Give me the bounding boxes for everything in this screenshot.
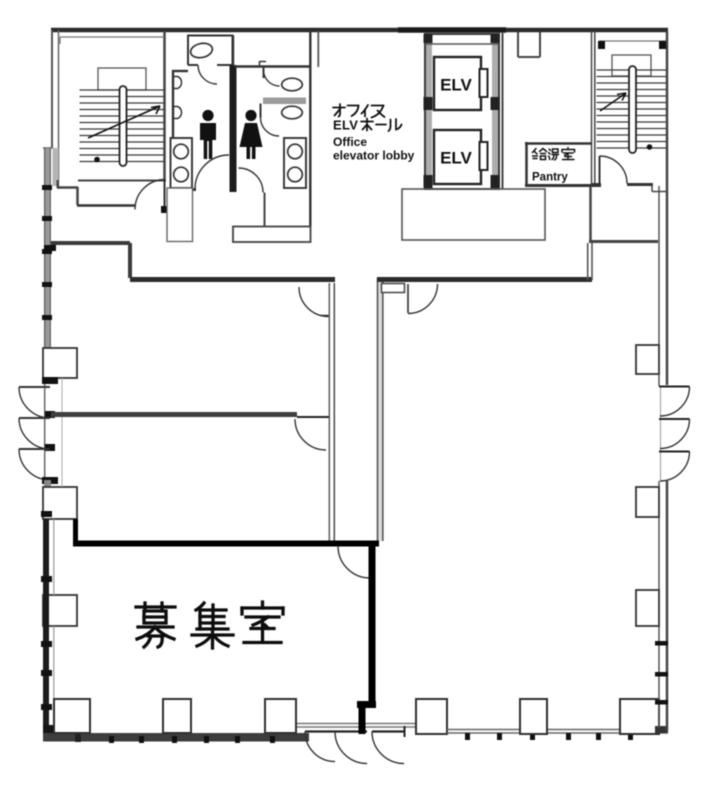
svg-text:ELV: ELV: [333, 118, 358, 133]
svg-text:Office: Office: [333, 135, 367, 149]
svg-text:ELV: ELV: [440, 76, 472, 95]
svg-text:Pantry: Pantry: [532, 172, 568, 184]
svg-text:ELV: ELV: [440, 149, 472, 168]
svg-text:elevator lobby: elevator lobby: [333, 149, 415, 163]
